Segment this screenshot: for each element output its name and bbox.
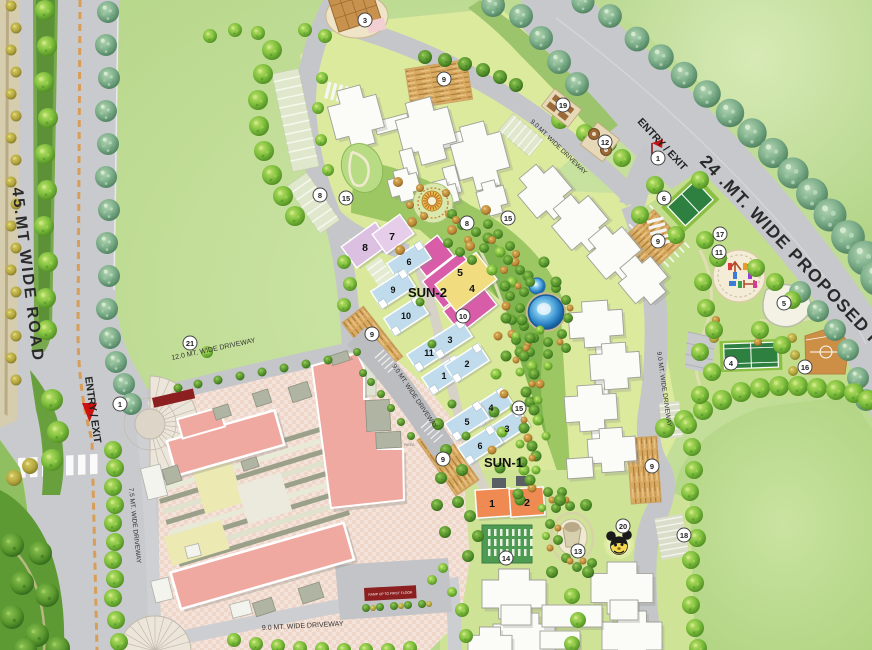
svg-text:SUN-1: SUN-1: [484, 455, 523, 470]
svg-text:15: 15: [515, 404, 523, 413]
svg-text:12: 12: [601, 138, 609, 147]
svg-text:9: 9: [390, 285, 395, 295]
svg-text:9: 9: [656, 237, 660, 246]
svg-text:9: 9: [442, 75, 446, 84]
svg-text:15: 15: [342, 194, 350, 203]
svg-text:2: 2: [524, 497, 530, 509]
svg-text:11: 11: [424, 348, 434, 358]
svg-text:6: 6: [477, 441, 482, 451]
svg-text:1: 1: [118, 400, 122, 409]
svg-text:5: 5: [464, 417, 469, 427]
svg-text:7: 7: [389, 231, 395, 243]
svg-text:16: 16: [801, 363, 809, 372]
svg-text:17: 17: [716, 230, 724, 239]
svg-text:4: 4: [488, 403, 493, 413]
svg-text:SUN-2: SUN-2: [408, 285, 447, 300]
svg-text:5: 5: [782, 299, 786, 308]
svg-text:11: 11: [715, 248, 723, 257]
svg-text:3: 3: [504, 424, 509, 434]
svg-text:2: 2: [464, 359, 469, 369]
svg-text:18: 18: [680, 531, 688, 540]
svg-text:10: 10: [459, 312, 467, 321]
svg-text:1: 1: [656, 154, 660, 163]
svg-text:8: 8: [318, 191, 322, 200]
svg-text:15: 15: [504, 214, 512, 223]
svg-text:1: 1: [441, 371, 446, 381]
svg-text:20: 20: [619, 522, 627, 531]
svg-text:3: 3: [363, 16, 367, 25]
svg-text:6: 6: [406, 257, 411, 267]
svg-text:13: 13: [574, 547, 582, 556]
svg-text:6: 6: [662, 194, 666, 203]
svg-text:8: 8: [362, 242, 368, 254]
svg-text:19: 19: [559, 101, 567, 110]
svg-text:5: 5: [457, 267, 463, 279]
svg-text:10: 10: [401, 311, 411, 321]
svg-text:9: 9: [650, 462, 654, 471]
svg-text:PAVED: PAVED: [404, 443, 415, 447]
svg-text:3: 3: [447, 335, 452, 345]
svg-text:8: 8: [465, 219, 469, 228]
svg-text:9: 9: [370, 330, 374, 339]
svg-text:4: 4: [469, 283, 475, 295]
svg-text:21: 21: [186, 339, 194, 348]
svg-text:9: 9: [441, 455, 445, 464]
svg-text:1: 1: [489, 498, 495, 510]
svg-text:14: 14: [502, 554, 511, 563]
